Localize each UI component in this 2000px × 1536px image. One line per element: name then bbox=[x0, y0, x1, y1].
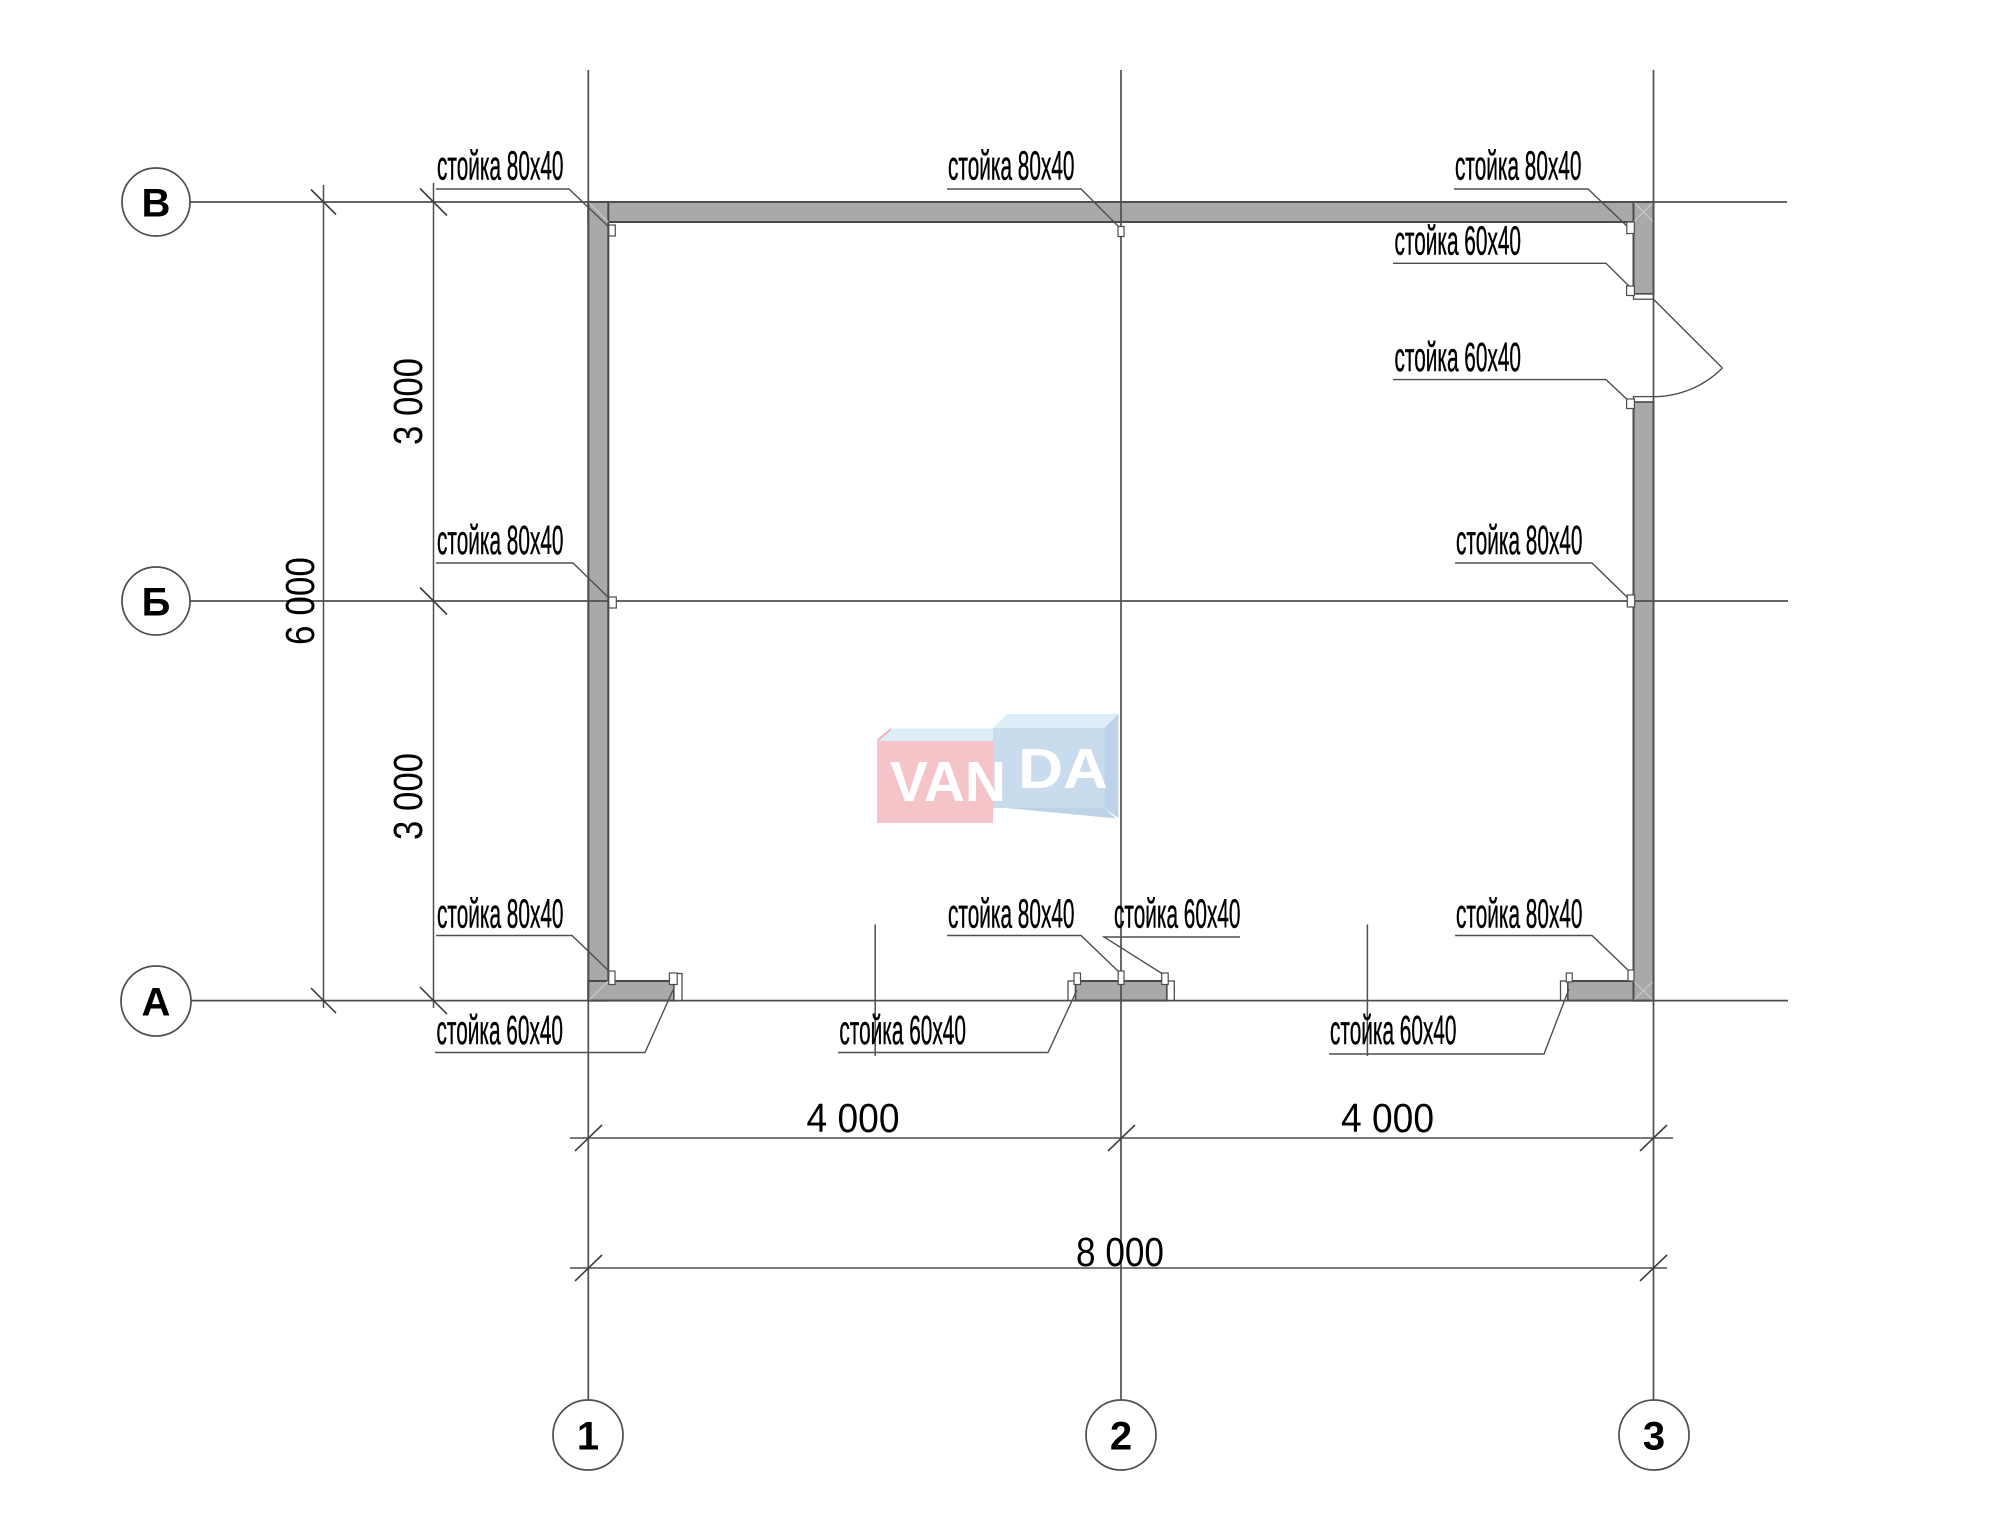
svg-text:2: 2 bbox=[1110, 1415, 1132, 1459]
svg-text:стойка 80х40: стойка 80х40 bbox=[1456, 891, 1583, 937]
svg-text:А: А bbox=[142, 981, 171, 1025]
svg-text:8 000: 8 000 bbox=[1076, 1229, 1164, 1275]
svg-text:стойка 60х40: стойка 60х40 bbox=[437, 1007, 564, 1053]
svg-text:1: 1 bbox=[577, 1415, 599, 1459]
svg-text:Б: Б bbox=[142, 581, 171, 625]
svg-text:3 000: 3 000 bbox=[385, 358, 431, 445]
svg-text:3 000: 3 000 bbox=[385, 753, 431, 840]
svg-text:4 000: 4 000 bbox=[1341, 1095, 1434, 1141]
svg-text:стойка 80х40: стойка 80х40 bbox=[1456, 517, 1583, 563]
svg-text:3: 3 bbox=[1643, 1415, 1665, 1459]
svg-text:стойка 60х40: стойка 60х40 bbox=[1395, 334, 1522, 380]
svg-text:стойка 80х40: стойка 80х40 bbox=[437, 517, 564, 563]
svg-text:стойка 80х40: стойка 80х40 bbox=[1455, 143, 1582, 189]
svg-text:стойка 60х40: стойка 60х40 bbox=[1395, 218, 1522, 264]
svg-text:стойка 60х40: стойка 60х40 bbox=[839, 1007, 966, 1053]
svg-text:4 000: 4 000 bbox=[807, 1095, 900, 1141]
svg-text:6 000: 6 000 bbox=[277, 557, 323, 645]
svg-text:стойка 80х40: стойка 80х40 bbox=[437, 143, 564, 189]
svg-text:DA: DA bbox=[1018, 737, 1108, 801]
svg-text:стойка 60х40: стойка 60х40 bbox=[1330, 1007, 1457, 1053]
svg-text:стойка 60х40: стойка 60х40 bbox=[1114, 891, 1241, 937]
svg-text:В: В bbox=[142, 182, 171, 226]
svg-text:VAN: VAN bbox=[890, 750, 1006, 814]
svg-text:стойка 80х40: стойка 80х40 bbox=[948, 143, 1075, 189]
svg-text:стойка 80х40: стойка 80х40 bbox=[437, 891, 564, 937]
svg-text:стойка 80х40: стойка 80х40 bbox=[948, 891, 1075, 937]
